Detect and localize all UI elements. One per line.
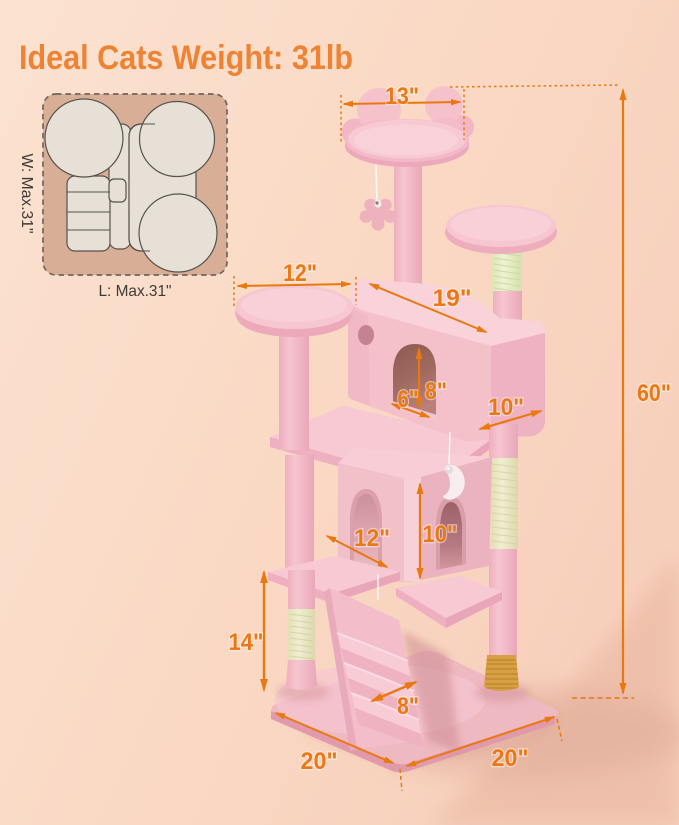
svg-text:W: Max.31": W: Max.31" <box>18 154 35 234</box>
svg-text:12": 12" <box>354 525 390 552</box>
svg-text:12": 12" <box>283 260 317 287</box>
svg-text:8": 8" <box>425 378 447 405</box>
svg-text:19": 19" <box>433 285 472 312</box>
svg-text:10": 10" <box>423 521 458 548</box>
svg-text:10": 10" <box>488 394 524 421</box>
svg-text:14": 14" <box>229 629 264 656</box>
svg-text:20": 20" <box>301 748 338 775</box>
svg-text:Ideal Cats Weight: 31lb: Ideal Cats Weight: 31lb <box>19 39 353 77</box>
svg-text:13": 13" <box>385 83 419 110</box>
svg-text:8": 8" <box>397 693 419 720</box>
svg-text:L: Max.31": L: Max.31" <box>99 283 172 300</box>
svg-text:6": 6" <box>398 386 419 413</box>
svg-text:60": 60" <box>637 380 671 407</box>
svg-text:20": 20" <box>492 745 529 772</box>
